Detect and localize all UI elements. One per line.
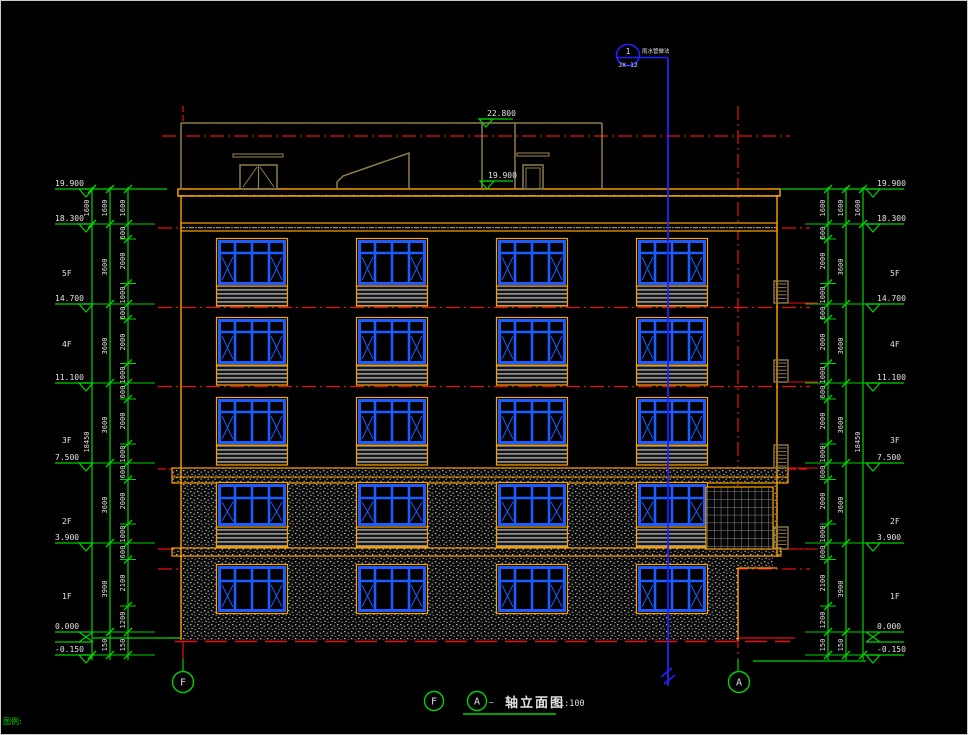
roof-door-right-inner [526,168,540,189]
callout-note: 雨水管做法 [642,47,670,55]
dim-mid: 3600 [101,417,109,434]
dim-outer: 2100 [819,575,827,592]
spandrel-louver [217,286,288,306]
title-axis-a-label: A [474,697,480,708]
dim-mid: 3600 [101,338,109,355]
floor-label-left: 5F [62,269,72,278]
dim-outer: 600 [119,546,127,559]
wall-hatch-step [738,556,773,568]
axis-bubble-f[interactable]: F [173,672,194,693]
elevation-triangle [79,304,93,312]
dim-outer: 1600 [819,200,827,217]
elev-left-7: -0.150 [55,645,84,654]
dim-outer: 2000 [119,493,127,510]
spandrel-louver [497,286,568,306]
parapet-band [178,189,780,196]
dim-outer: 600 [119,227,127,240]
dim-mid: 1600 [101,200,109,217]
elev-right-2: 14.700 [877,294,906,303]
dim-outer: 600 [819,546,827,559]
elev-right-7: -0.150 [877,645,906,654]
floor-label-right: 4F [890,340,900,349]
drawing-scale: 1:100 [559,699,585,709]
window-unit-f5-c2[interactable] [357,239,428,307]
elev-19900-roof: 19.900 [488,171,517,180]
floor-label-right: 2F [890,517,900,526]
belt-course-7500 [172,468,788,483]
callout-number: 1 [626,47,631,56]
elev-left-3: 11.100 [55,373,84,382]
dim-outer: 1000 [819,526,827,543]
dim-outer: 600 [819,466,827,479]
floor-label-right: 3F [890,436,900,445]
cad-elevation-canvas[interactable]: 22.80019.9001JX-12雨水管做法16006002000100060… [0,0,968,735]
window-unit-f4-c4[interactable] [637,318,708,386]
elev-right-5: 3.900 [877,533,901,542]
spandrel-louver [217,445,288,465]
dim-outer: 2000 [819,413,827,430]
floor-label-left: 2F [62,517,72,526]
louver-boxes [774,281,818,549]
dim-outer: 600 [819,307,827,320]
window-unit-f1-c1[interactable] [217,565,288,614]
title-axis-a[interactable]: A [468,692,487,711]
title-axis-f[interactable]: F [425,692,444,711]
spandrel-louver [637,445,708,465]
window-unit-f4-c2[interactable] [357,318,428,386]
dim-outer: 150 [819,639,827,652]
dim-mid: 3900 [837,581,845,598]
window-unit-f4-c1[interactable] [217,318,288,386]
roof-slab-band [181,223,777,231]
elevation-triangle [866,543,880,551]
dim-inner: 18450 [854,431,862,452]
pipe-break-mark [661,668,672,677]
dim-outer: 1600 [119,200,127,217]
axis-bubble-f-label: F [180,678,186,689]
louver-box[interactable] [774,360,788,382]
window-unit-f5-c3[interactable] [497,239,568,307]
elev-right-0: 19.900 [877,179,906,188]
floor-band-3900 [172,548,781,556]
dim-inner: 18450 [83,431,91,452]
floor-label-left: 3F [62,436,72,445]
elev-left-0: 19.900 [55,179,84,188]
elevation-triangle [866,655,880,663]
roof-elevation-markers: 22.80019.900 [479,109,517,189]
dim-inner: 1600 [854,200,862,217]
window-unit-f1-c2[interactable] [357,565,428,614]
dim-outer: 1000 [819,446,827,463]
spandrel-louver [357,445,428,465]
dim-outer: 1000 [119,446,127,463]
dim-outer: 600 [119,307,127,320]
elev-22800: 22.800 [487,109,516,118]
window-unit-f1-c4[interactable] [637,565,708,614]
dim-outer: 2000 [119,413,127,430]
window-unit-f1-c3[interactable] [497,565,568,614]
floor-label-right: 5F [890,269,900,278]
dim-outer: 150 [119,639,127,652]
spandrel-louver [217,365,288,385]
spandrel-louver [357,365,428,385]
elev-right-6: 0.000 [877,622,901,631]
elevation-triangle [866,383,880,391]
axis-bubble-a-label: A [736,678,742,689]
window-unit-f4-c3[interactable] [497,318,568,386]
louver-box[interactable] [774,445,788,468]
dim-mid: 1600 [837,200,845,217]
lattice-grille[interactable] [706,487,773,549]
spandrel-louver [217,527,288,547]
dim-mid: 3600 [837,259,845,276]
elevation-drawing: 22.80019.9001JX-12雨水管做法16006002000100060… [3,45,906,727]
window-unit-f2-c3[interactable] [497,483,568,548]
roof-door-right-coping [517,153,549,156]
window-unit-f3-c3[interactable] [497,398,568,466]
window-unit-f3-c1[interactable] [217,398,288,466]
dim-mid: 3600 [101,259,109,276]
dim-outer: 600 [819,227,827,240]
window-unit-f3-c4[interactable] [637,398,708,466]
dim-mid: 3600 [837,417,845,434]
dim-outer: 2000 [819,493,827,510]
floor-label-left: 1F [62,592,72,601]
elevation-triangle [79,463,93,471]
dim-mid: 150 [837,639,845,652]
dim-outer: 600 [819,386,827,399]
roof-door-left-coping [233,154,283,157]
dim-outer: 2000 [819,334,827,351]
elevation-triangle [79,543,93,551]
dim-outer: 1200 [819,612,827,629]
louver-box[interactable] [774,281,788,303]
dim-outer: 1200 [119,612,127,629]
elev-left-1: 18.300 [55,214,84,223]
dim-outer: 600 [119,386,127,399]
spandrel-louver [637,286,708,306]
dim-mid: 150 [101,639,109,652]
dim-mid: 3600 [837,497,845,514]
dimension-chain-left: 1600600200010006002000100060020001000600… [83,185,136,660]
roof-door-left-diag1 [243,167,257,187]
elev-left-6: 0.000 [55,622,79,631]
dim-outer: 1000 [119,287,127,304]
roof-skylight-slope [337,153,409,189]
window-unit-f5-c1[interactable] [217,239,288,307]
elev-right-3: 11.100 [877,373,906,382]
floor-label-right: 1F [890,592,900,601]
elevation-triangle [866,304,880,312]
dim-inner: 1600 [83,200,91,217]
dim-mid: 3600 [101,497,109,514]
roof-door-left-diag2 [260,167,274,187]
callout-code: JX-12 [618,61,638,69]
dim-outer: 1000 [119,367,127,384]
window-unit-f2-c2[interactable] [357,483,428,548]
dimension-chain-right: 1600600200010006002000100060020001000600… [819,185,871,660]
dim-outer: 2000 [119,253,127,270]
spandrel-louver [637,365,708,385]
footer: FAFA~轴立面图1:100 [173,659,750,714]
elev-left-5: 3.900 [55,533,79,542]
elev-right-1: 18.300 [877,214,906,223]
elevation-triangle [79,383,93,391]
drawing-title: 轴立面图 [505,695,565,711]
spandrel-louver [357,527,428,547]
dim-mid: 3600 [837,338,845,355]
elev-right-4: 7.500 [877,453,901,462]
corner-note: 图例: [3,716,22,726]
elevation-triangle [866,189,880,197]
floor-label-left: 4F [62,340,72,349]
elev-left-2: 14.700 [55,294,84,303]
window-unit-f2-c1[interactable] [217,483,288,548]
window-unit-f2-c4[interactable] [637,483,708,548]
window-unit-f3-c2[interactable] [357,398,428,466]
spandrel-louver [497,527,568,547]
spandrel-louver [497,445,568,465]
elevation-triangle [866,463,880,471]
elevation-triangle [866,224,880,232]
spandrel-louver [637,527,708,547]
dim-outer: 2100 [119,575,127,592]
title-tilde: ~ [489,698,494,707]
roof-structures [181,123,602,189]
spandrel-louver [357,286,428,306]
dim-outer: 1000 [819,287,827,304]
dim-outer: 1000 [819,367,827,384]
pipe-break-mark [664,675,675,684]
spandrel-louver [497,365,568,385]
dim-outer: 2000 [119,334,127,351]
window-unit-f5-c4[interactable] [637,239,708,307]
dim-outer: 1000 [119,526,127,543]
dim-outer: 2000 [819,253,827,270]
dim-outer: 600 [119,466,127,479]
title-axis-f-label: F [431,697,437,708]
dim-mid: 3900 [101,581,109,598]
elev-left-4: 7.500 [55,453,79,462]
axis-bubble-a[interactable]: A [729,672,750,693]
